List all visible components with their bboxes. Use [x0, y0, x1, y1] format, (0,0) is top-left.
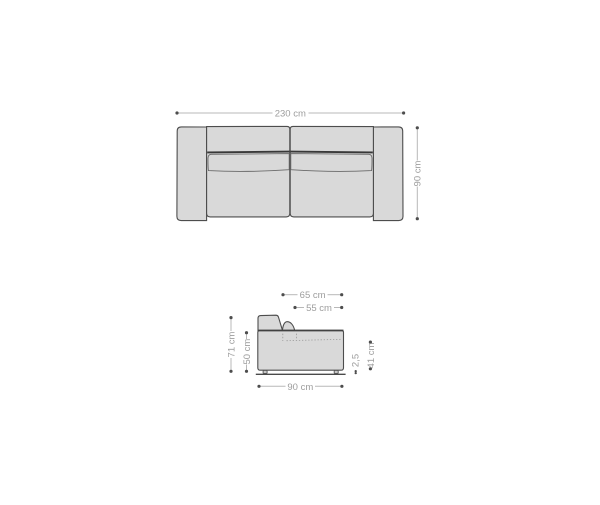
svg-text:90 cm: 90 cm	[287, 382, 313, 393]
svg-text:230 cm: 230 cm	[275, 109, 306, 120]
svg-text:55 cm: 55 cm	[306, 303, 332, 314]
svg-text:65 cm: 65 cm	[300, 290, 326, 301]
svg-text:2,5: 2,5	[350, 354, 361, 367]
svg-text:50 cm: 50 cm	[242, 339, 253, 365]
svg-text:71 cm: 71 cm	[226, 331, 237, 357]
svg-text:90 cm: 90 cm	[413, 160, 424, 186]
svg-text:41 cm: 41 cm	[366, 342, 377, 368]
